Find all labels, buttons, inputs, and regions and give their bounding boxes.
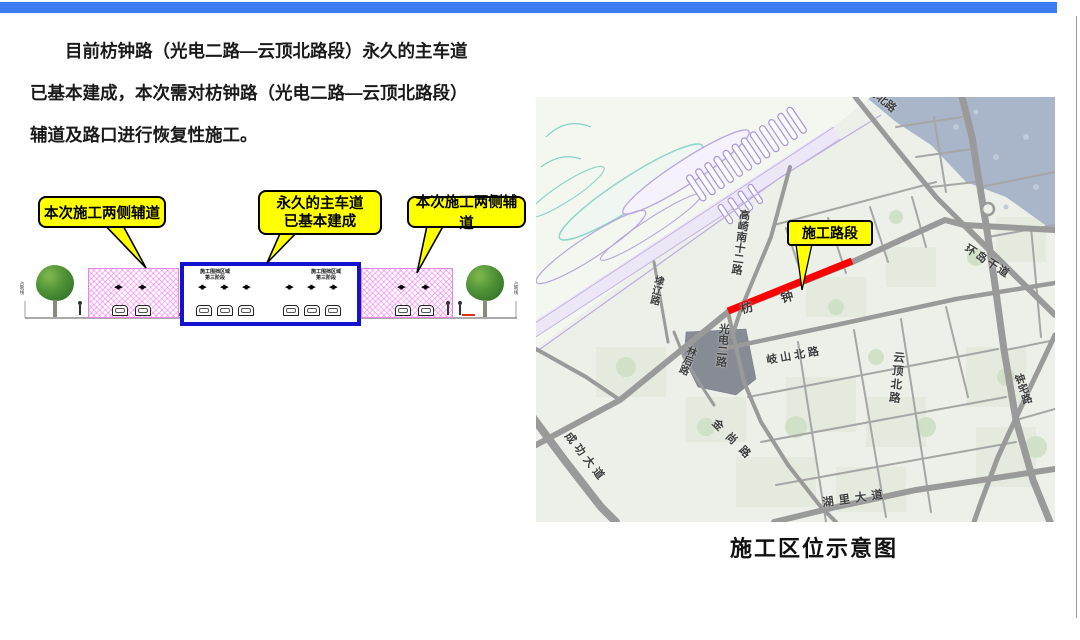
person-icon	[456, 301, 464, 316]
car-icon	[238, 305, 254, 316]
tree-right	[466, 265, 504, 318]
intro-paragraph: 目前枋钟路（光电二路—云顶北路段）永久的主车道 已基本建成，本次需对枋钟路（光电…	[30, 30, 530, 156]
callout-side-roads-right: 本次施工两侧辅道	[407, 196, 526, 228]
car-icon	[304, 305, 320, 316]
callout-side-roads-left: 本次施工两侧辅道	[38, 196, 166, 228]
person-icon	[76, 301, 84, 316]
intro-line-1: 目前枋钟路（光电二路—云顶北路段）永久的主车道	[30, 30, 530, 72]
lane-arrow-icon	[220, 283, 227, 291]
callout-main-road: 永久的主车道 已基本建成	[258, 190, 382, 235]
lane-arrow-icon	[242, 283, 249, 291]
lane-arrow-icon	[114, 283, 121, 291]
location-map: 高崎南十二路 枋 钟 埭辽路 光电二路 林后路 岐山北路 云顶北路 金尚路 成功…	[536, 97, 1055, 522]
callout-center-line-1: 永久的主车道	[277, 195, 364, 213]
accent-bar	[0, 2, 1057, 13]
lane-arrow-icon	[138, 283, 145, 291]
page-edge-line	[1076, 16, 1077, 618]
map-caption: 施工区位示意图	[730, 531, 898, 563]
slide: 目前枋钟路（光电二路—云顶北路段）永久的主车道 已基本建成，本次需对枋钟路（光电…	[0, 0, 1080, 640]
lane-arrow-icon	[198, 283, 205, 291]
intro-line-3: 辅道及路口进行恢复性施工。	[30, 114, 530, 156]
lane-arrow-icon	[285, 283, 292, 291]
callout-right-label: 本次施工两侧辅道	[409, 191, 524, 233]
car-icon	[112, 305, 128, 316]
lane-arrow-icon	[397, 283, 404, 291]
lane-arrow-icon	[307, 283, 314, 291]
lane-arrow-icon	[329, 283, 336, 291]
car-icon	[325, 305, 341, 316]
car-icon	[283, 305, 299, 316]
car-icon	[217, 305, 233, 316]
car-icon	[418, 305, 434, 316]
car-icon	[135, 305, 151, 316]
car-icon	[196, 305, 212, 316]
lane-arrow-icon	[421, 283, 428, 291]
callout-center-line-2: 已基本建成	[284, 213, 357, 231]
callout-left-label: 本次施工两侧辅道	[44, 202, 160, 223]
intro-line-2: 已基本建成，本次需对枋钟路（光电二路—云顶北路段）	[30, 72, 530, 114]
map-graphic	[536, 97, 1055, 522]
construction-segment-callout: 施工路段	[787, 220, 873, 246]
tree-left	[36, 265, 74, 318]
car-icon	[395, 305, 411, 316]
person-icon	[444, 301, 452, 316]
